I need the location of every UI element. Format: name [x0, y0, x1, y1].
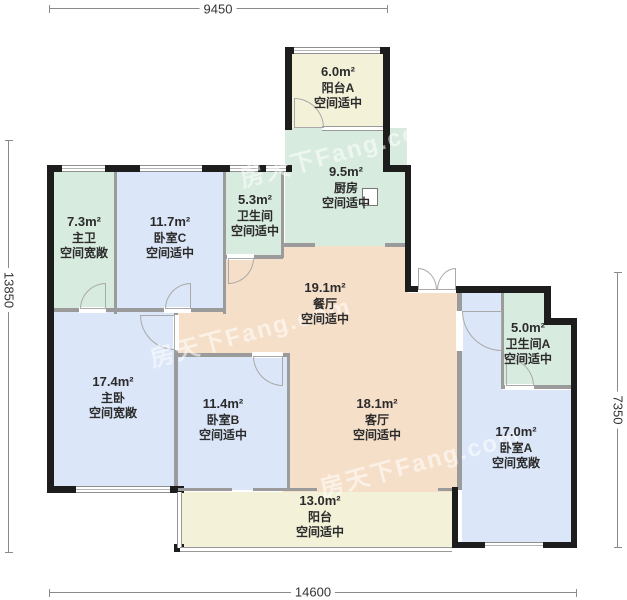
interior-wall: [223, 168, 226, 314]
dimension-label-bottom: 14600: [291, 585, 335, 600]
balcony-glass: [180, 547, 452, 552]
room-area: 18.1m²: [353, 396, 401, 413]
window: [485, 542, 543, 548]
room-name: 卧室B: [199, 413, 247, 429]
room-living-floor-east: [408, 293, 458, 492]
room-area: 11.4m²: [199, 396, 247, 413]
interior-wall: [52, 308, 225, 312]
exterior-wall: [405, 286, 418, 292]
room-label-kitchen: 9.5m² 厨房 空间适中: [322, 164, 370, 212]
room-note: 空间适中: [314, 96, 362, 112]
room-note: 空间适中: [146, 246, 194, 262]
balcony-glass: [177, 492, 182, 548]
room-label-master-bath: 7.3m² 主卫 空间宽敞: [60, 214, 108, 262]
balcony-a-sill: [322, 126, 383, 131]
window: [294, 47, 380, 54]
room-note: 空间适中: [504, 352, 552, 368]
interior-wall: [287, 353, 290, 490]
exterior-wall: [405, 165, 411, 292]
exterior-wall: [456, 286, 550, 293]
room-label-balcony: 13.0m² 阳台 空间适中: [296, 493, 344, 541]
room-name: 客厅: [353, 413, 401, 429]
window: [140, 165, 202, 172]
room-label-master-bedroom: 17.4m² 主卧 空间宽敞: [89, 374, 137, 422]
room-label-balcony-a: 6.0m² 阳台A 空间适中: [314, 64, 362, 112]
room-area: 9.5m²: [322, 164, 370, 181]
room-area: 7.3m²: [60, 214, 108, 231]
dimension-label-left: 13850: [2, 268, 17, 312]
interior-wall: [283, 243, 315, 247]
floorplan-canvas: 房天下Fang.com 房天下Fang.com 房天下Fang.com 7.3m…: [0, 0, 627, 600]
entry-door-arc-right: [437, 268, 456, 290]
exterior-wall: [571, 318, 577, 548]
room-note: 空间适中: [296, 525, 344, 541]
dimension-label-top: 9450: [200, 2, 237, 17]
room-area: 5.3m²: [231, 192, 279, 209]
room-note: 空间宽敞: [60, 246, 108, 262]
room-name: 卧室A: [492, 441, 540, 457]
exterior-wall: [47, 165, 54, 493]
window: [76, 486, 170, 493]
room-note: 空间适中: [231, 224, 279, 240]
dimension-label-right: 7350: [611, 392, 626, 429]
interior-wall: [114, 168, 117, 314]
sliding-door-sill: [438, 488, 452, 491]
room-note: 空间宽敞: [492, 456, 540, 472]
sliding-door-sill: [178, 488, 232, 491]
room-label-bedroom-c: 11.7m² 卧室C 空间适中: [146, 214, 194, 262]
sliding-door-sill: [253, 488, 317, 491]
room-note: 空间适中: [301, 312, 349, 328]
room-area: 17.4m²: [89, 374, 137, 391]
room-note: 空间宽敞: [89, 406, 137, 422]
window: [230, 165, 258, 172]
entry-door-arc-left: [418, 268, 437, 290]
room-name: 卫生间: [231, 209, 279, 225]
room-label-bedroom-a: 17.0m² 卧室A 空间宽敞: [492, 424, 540, 472]
room-area: 19.1m²: [301, 280, 349, 297]
room-label-bedroom-b: 11.4m² 卧室B 空间适中: [199, 396, 247, 444]
room-name: 卫生间A: [504, 337, 552, 353]
room-name: 厨房: [322, 181, 370, 197]
room-name: 主卧: [89, 391, 137, 407]
window: [62, 165, 105, 172]
room-label-dining: 19.1m² 餐厅 空间适中: [301, 280, 349, 328]
room-name: 主卫: [60, 231, 108, 247]
room-area: 11.7m²: [146, 214, 194, 231]
room-note: 空间适中: [322, 196, 370, 212]
room-area: 13.0m²: [296, 493, 344, 510]
room-label-living: 18.1m² 客厅 空间适中: [353, 396, 401, 444]
room-note: 空间适中: [199, 428, 247, 444]
window: [266, 165, 286, 172]
exterior-wall: [285, 47, 292, 130]
hallway-floor: [175, 310, 283, 356]
dimension-line-left: [8, 140, 9, 553]
room-note: 空间适中: [353, 428, 401, 444]
room-label-bathroom-a: 5.0m² 卫生间A 空间适中: [504, 320, 552, 368]
room-area: 5.0m²: [504, 320, 552, 337]
room-name: 阳台A: [314, 81, 362, 97]
room-name: 餐厅: [301, 297, 349, 313]
exterior-wall: [383, 47, 390, 172]
room-name: 阳台: [296, 510, 344, 526]
room-label-bathroom: 5.3m² 卫生间 空间适中: [231, 192, 279, 240]
room-name: 卧室C: [146, 231, 194, 247]
exterior-wall: [452, 487, 458, 548]
room-area: 6.0m²: [314, 64, 362, 81]
room-area: 17.0m²: [492, 424, 540, 441]
